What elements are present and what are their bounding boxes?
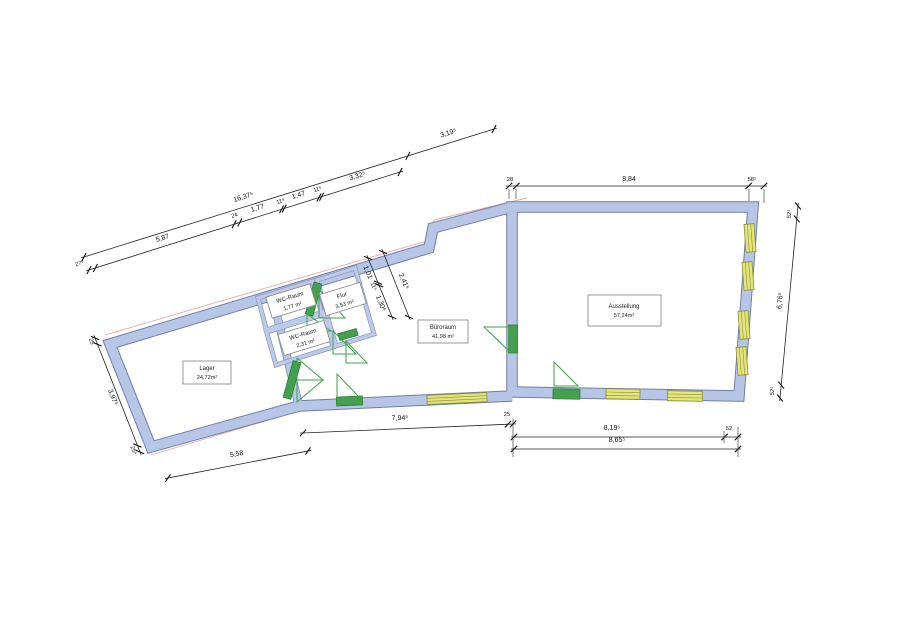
window-ausstellung-east-4	[736, 347, 748, 376]
dim-label-25-bottom: 25⁵	[129, 445, 139, 456]
dim-top-inner	[86, 168, 403, 274]
dim-label-794: 7,94⁵	[392, 415, 409, 423]
dim-label-587: 5,87	[155, 233, 170, 244]
svg-text:Lager: Lager	[199, 366, 214, 372]
window-ausstellung-east-2	[742, 262, 754, 291]
floor-plan-svg: 16,37⁵ 3,19⁵ 27⁵ 5,87 24 1,77 11⁵ 1,47 1…	[0, 0, 900, 636]
dim-label-overall-top: 16,37⁵	[233, 191, 255, 204]
window-ausstellung-south-1	[606, 389, 640, 400]
dim-label-52-right: 52	[726, 426, 732, 432]
dim-label-11b: 11⁵	[312, 185, 323, 194]
room-label-ausstellung: Ausstellung 57,24m²	[588, 295, 661, 326]
door-buero-ausstellung	[509, 325, 518, 353]
dim-label-676: 6,76⁵	[776, 292, 785, 309]
dim-label-top-right-ext: 3,19⁵	[440, 128, 458, 140]
dimension-labels: 16,37⁵ 3,19⁵ 27⁵ 5,87 24 1,77 11⁵ 1,47 1…	[74, 128, 793, 460]
window-ausstellung-east-1	[744, 224, 756, 253]
dim-bottom-middle	[300, 421, 516, 437]
svg-text:41,98 m²: 41,98 m²	[432, 334, 454, 340]
door-south-wall	[336, 396, 362, 406]
floor-plan-page: 16,37⁵ 3,19⁵ 27⁵ 5,87 24 1,77 11⁵ 1,47 1…	[0, 0, 900, 636]
dim-label-332: 3,32⁵	[349, 171, 367, 183]
dim-label-11a: 11⁵	[275, 197, 286, 206]
window-ausstellung-east-3	[738, 311, 750, 340]
svg-text:57,24m²: 57,24m²	[614, 313, 635, 319]
dim-label-130: 1,30⁵	[374, 294, 387, 312]
door-ausstellung-south	[553, 389, 580, 399]
svg-text:Ausstellung: Ausstellung	[608, 304, 639, 310]
dim-label-28: 28	[507, 177, 513, 183]
svg-text:Büroraum: Büroraum	[430, 325, 456, 331]
room-label-flur: Flur 3,53 m²	[320, 282, 367, 315]
dim-label-884: 8,84	[622, 176, 636, 183]
dim-bottom-ausstellung-inner	[511, 434, 741, 440]
dim-label-25-mid: 25	[504, 412, 511, 418]
dim-label-558: 5,58	[229, 450, 244, 459]
dim-label-819: 8,19⁵	[604, 425, 621, 432]
dim-label-58: 58⁵	[748, 176, 757, 183]
window-ausstellung-south-2	[667, 391, 702, 402]
svg-text:24,72m²: 24,72m²	[197, 375, 218, 381]
dim-bottom-ausstellung-outer	[511, 446, 741, 452]
dim-label-52-bottom: 52⁵	[769, 386, 777, 396]
room-label-buero: Büroraum 41,98 m²	[418, 320, 468, 343]
dim-label-24: 24	[231, 212, 240, 220]
dim-label-52-top: 52⁵	[786, 209, 794, 219]
room-label-lager: Lager 24,72m²	[183, 361, 231, 384]
dimension-lines	[81, 125, 801, 482]
dim-ausstellung-top	[506, 183, 767, 189]
dim-label-11c: 11⁵	[369, 281, 379, 292]
dim-label-27: 27⁵	[74, 259, 85, 268]
dim-label-25-top: 25	[87, 338, 95, 346]
dim-label-865: 8,65⁵	[609, 437, 626, 444]
dim-label-241: 2,41⁵	[397, 272, 410, 290]
dim-label-397: 3,97⁵	[106, 388, 119, 406]
